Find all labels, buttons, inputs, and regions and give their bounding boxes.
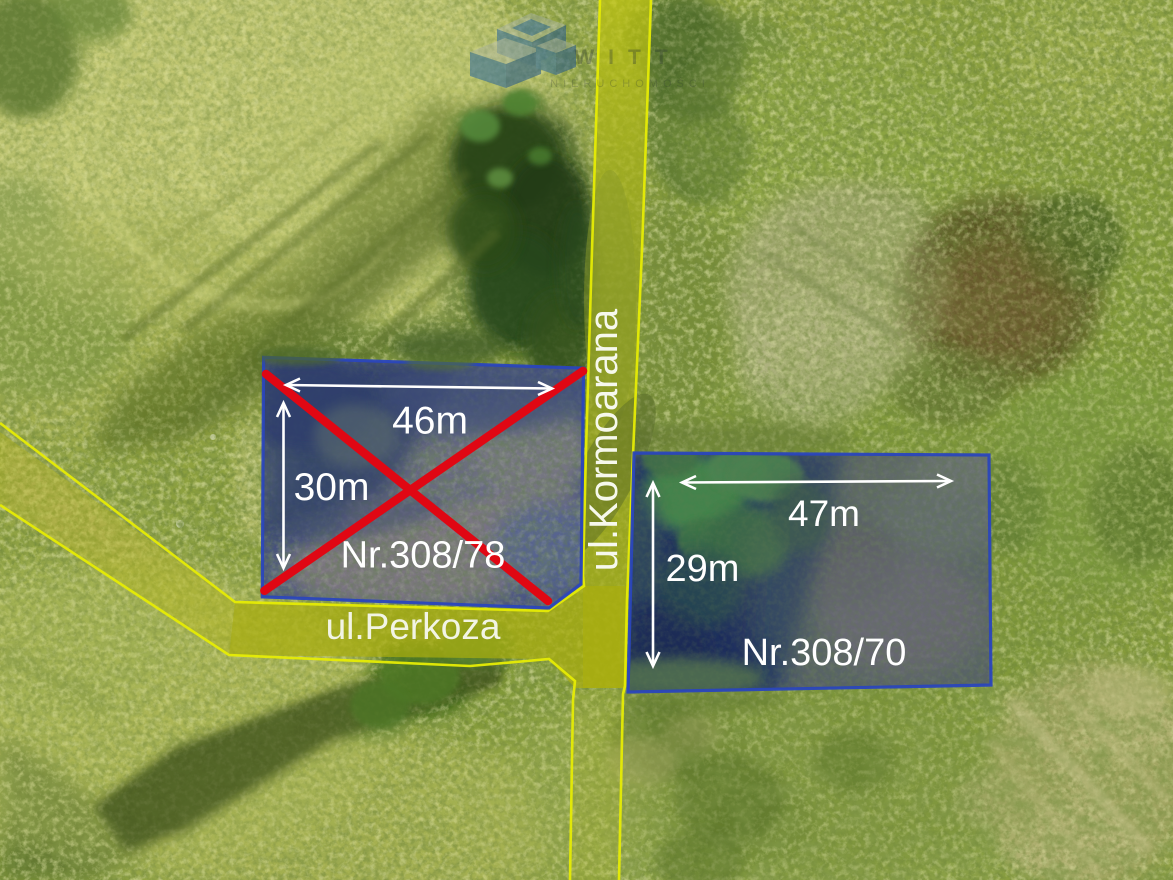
svg-text:WITT: WITT: [574, 46, 681, 69]
svg-text:47m: 47m: [788, 493, 860, 534]
svg-text:29m: 29m: [666, 548, 740, 590]
svg-text:30m: 30m: [294, 466, 370, 509]
svg-text:ul.Perkoza: ul.Perkoza: [326, 606, 501, 647]
svg-text:ul.Kormoarana: ul.Kormoarana: [582, 308, 626, 571]
svg-text:NIERUCHOMOŚCI: NIERUCHOMOŚCI: [550, 77, 710, 90]
svg-text:46m: 46m: [392, 400, 468, 443]
svg-text:Nr.308/78: Nr.308/78: [341, 535, 506, 577]
svg-text:Nr.308/70: Nr.308/70: [742, 632, 907, 674]
